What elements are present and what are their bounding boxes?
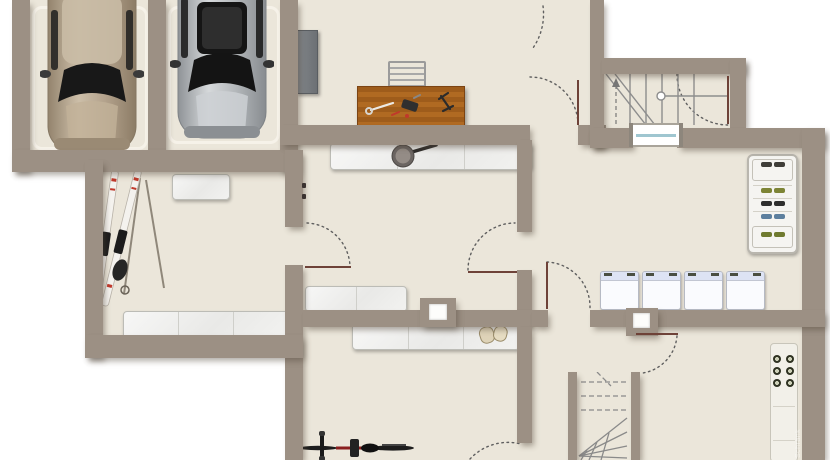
stairwell-door-leaf xyxy=(727,76,729,124)
ski-room-door-leaf xyxy=(305,266,351,268)
stairwell-top-wall xyxy=(602,58,746,74)
hall-bottom-wall xyxy=(303,310,532,327)
floor-plan: Schrank xyxy=(0,0,830,460)
window-glass xyxy=(636,134,676,137)
hall-top-shelf xyxy=(330,143,532,170)
shoe xyxy=(774,232,785,237)
shoe xyxy=(774,201,785,206)
hall-laundry-wall-upper xyxy=(517,140,532,232)
washing-machine xyxy=(642,271,681,310)
ski-hall-wall-lower xyxy=(285,265,303,460)
shoe xyxy=(761,232,772,237)
ski-bottom-wall xyxy=(85,335,303,358)
hall-left-shelf xyxy=(305,286,407,312)
shoe xyxy=(774,214,785,219)
ski-hall-wall-upper xyxy=(285,150,303,227)
laundry-chimney-flue xyxy=(633,313,650,328)
workshop-bottom-wall-a xyxy=(280,125,530,145)
wall-mounted-fixture xyxy=(302,183,306,188)
washing-machine-lid xyxy=(727,272,764,281)
laundry-bottom-stub xyxy=(532,310,548,327)
stairwell-window xyxy=(630,123,682,147)
workshop-wall-cabinet xyxy=(296,30,318,94)
shoe xyxy=(761,188,772,193)
stove-burners xyxy=(773,355,794,387)
washing-machine-lid xyxy=(685,272,722,281)
washing-machine xyxy=(600,271,639,310)
bike-right-wall xyxy=(517,327,532,443)
stair-hall-door-leaf xyxy=(636,333,678,335)
shoe xyxy=(761,214,772,219)
burner xyxy=(773,355,781,363)
shoe-pair-row xyxy=(749,162,796,167)
burner xyxy=(786,367,794,375)
shoe-pair-row xyxy=(749,188,796,193)
stair-rail-right xyxy=(631,372,640,460)
burner xyxy=(773,379,781,387)
stairwell-left-wall xyxy=(590,0,604,148)
shoe xyxy=(774,162,785,167)
shoe-pair-row xyxy=(749,232,796,237)
washing-machine-lid xyxy=(643,272,680,281)
washing-machine xyxy=(726,271,765,310)
window-jamb-right xyxy=(679,123,683,147)
garage-bottom-wall xyxy=(12,150,298,172)
garage-left-wall xyxy=(12,0,30,172)
burner xyxy=(786,379,794,387)
washing-machine-lid xyxy=(601,272,638,281)
stair-rail-left xyxy=(568,372,577,460)
shoe xyxy=(761,201,772,206)
workbench xyxy=(357,86,465,128)
parking-bay-left xyxy=(32,6,148,150)
laundry-top-wall-a xyxy=(590,128,633,148)
stairwell-right-wall xyxy=(730,58,746,128)
window-jamb-left xyxy=(629,123,633,147)
shoe xyxy=(761,162,772,167)
shoe-pair-row xyxy=(749,214,796,219)
shoe-pair-row xyxy=(749,201,796,206)
burner xyxy=(773,367,781,375)
workshop-left-wall xyxy=(280,0,298,172)
parking-bay-right xyxy=(168,6,280,144)
ski-room-top-shelf xyxy=(172,174,230,200)
wall-watermark: Schrank xyxy=(795,398,807,458)
shoe-slots xyxy=(749,156,796,252)
hall-chimney-flue xyxy=(429,304,447,320)
hall-laundry-door-leaf xyxy=(468,271,517,273)
washing-machine xyxy=(684,271,723,310)
burner xyxy=(786,355,794,363)
workshop-door-leaf xyxy=(577,80,579,125)
washing-machine-row xyxy=(600,271,765,310)
shoe xyxy=(774,188,785,193)
ski-left-wall xyxy=(85,160,103,358)
shoe-rack xyxy=(747,154,798,254)
laundry-south-door-leaf xyxy=(546,262,548,309)
garage-divider-wall xyxy=(148,0,166,152)
wall-mounted-fixture xyxy=(302,194,306,199)
